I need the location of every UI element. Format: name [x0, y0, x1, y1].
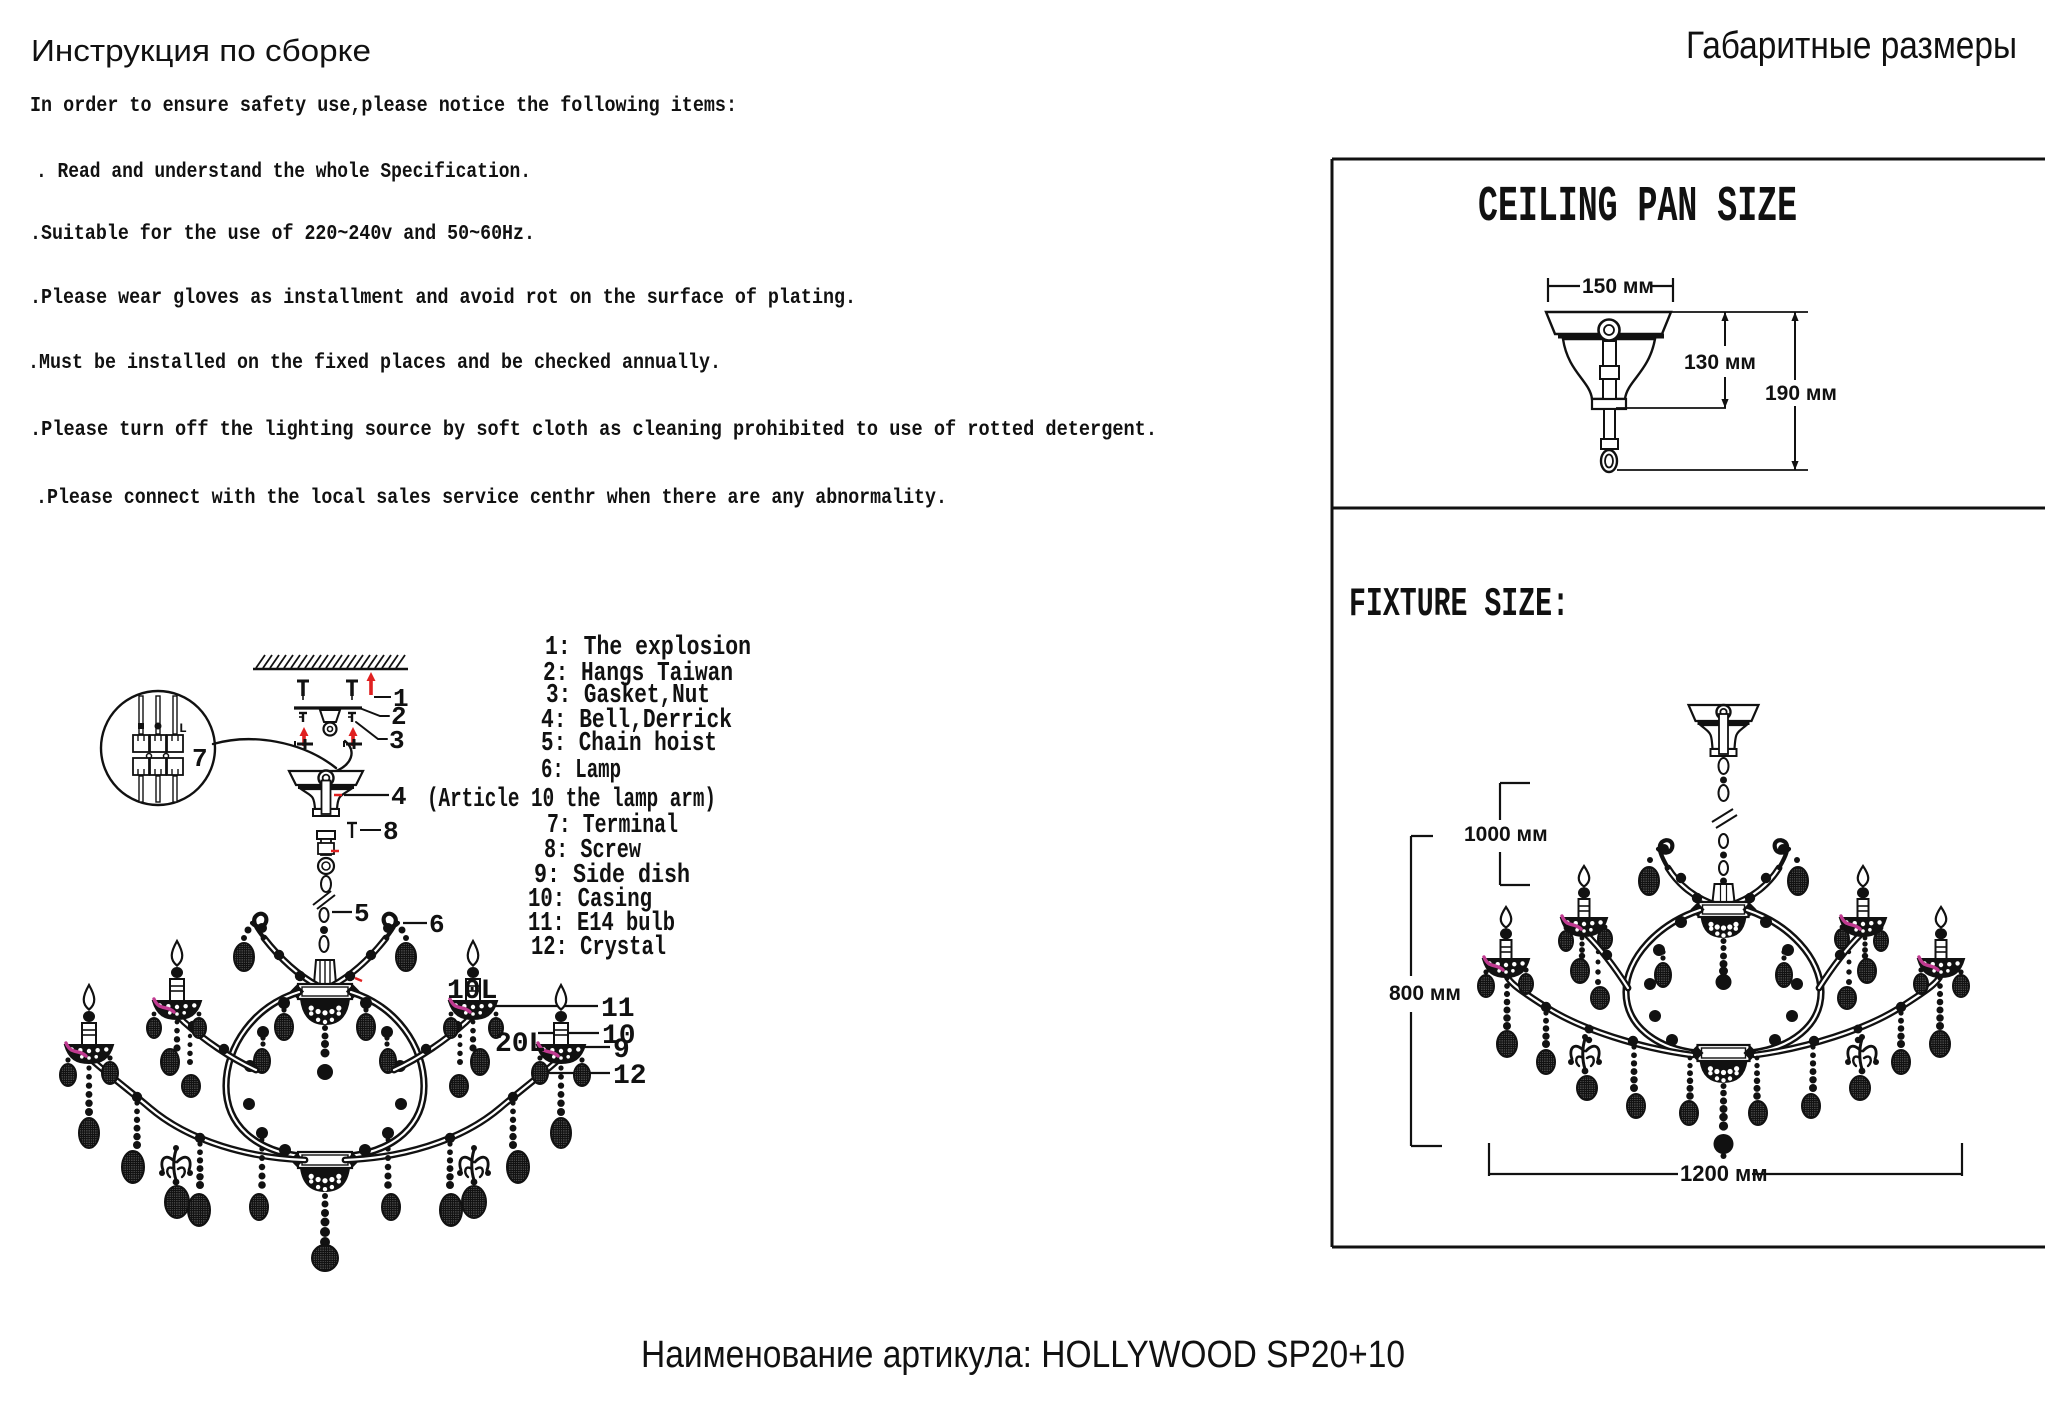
svg-text:12: Crystal: 12: Crystal: [531, 933, 666, 963]
svg-text:Габаритные размеры: Габаритные размеры: [1686, 25, 2017, 67]
svg-text:.Please connect with the local: .Please connect with the local sales ser…: [36, 487, 947, 510]
svg-text:In order to ensure safety use,: In order to ensure safety use,please not…: [30, 95, 737, 118]
svg-text:. Read and understand the whol: . Read and understand the whole Specific…: [36, 161, 531, 184]
svg-text:5: 5: [354, 899, 370, 929]
svg-text:.Must be installed on the fixe: .Must be installed on the fixed places a…: [28, 352, 721, 375]
svg-text:800 мм: 800 мм: [1389, 982, 1461, 1005]
svg-text:20L: 20L: [495, 1029, 545, 1060]
svg-text:6: 6: [429, 910, 445, 940]
svg-text:L: L: [179, 721, 187, 736]
svg-text:150 мм: 150 мм: [1582, 275, 1654, 298]
svg-text:6: Lamp: 6: Lamp: [541, 756, 621, 786]
svg-text:CEILING PAN SIZE: CEILING PAN SIZE: [1478, 179, 1797, 236]
svg-text:4: 4: [391, 782, 407, 812]
svg-text:130 мм: 130 мм: [1684, 351, 1756, 374]
svg-text:.Suitable for the use of 220~2: .Suitable for the use of 220~240v and 50…: [30, 223, 535, 246]
svg-text:1000 мм: 1000 мм: [1464, 823, 1548, 846]
svg-text:Наименование артикула: HOLLYWO: Наименование артикула: HOLLYWOOD SP20+10: [641, 1334, 1405, 1376]
svg-text:12: 12: [613, 1061, 647, 1092]
svg-text:FIXTURE SIZE:: FIXTURE SIZE:: [1349, 582, 1569, 628]
svg-text:Инструкция по сборке: Инструкция по сборке: [31, 33, 371, 68]
svg-text:.Please turn off the lighting: .Please turn off the lighting source by …: [30, 419, 1157, 442]
svg-text:3: 3: [389, 726, 405, 756]
svg-text:1200 мм: 1200 мм: [1680, 1161, 1768, 1186]
svg-text:.Please wear gloves as install: .Please wear gloves as installment and a…: [30, 287, 856, 310]
svg-text:190 мм: 190 мм: [1765, 382, 1837, 405]
svg-text:8: 8: [383, 817, 399, 847]
svg-text:7: 7: [192, 744, 208, 774]
svg-text:5: Chain hoist: 5: Chain hoist: [541, 729, 717, 759]
svg-text:10L: 10L: [447, 976, 497, 1007]
